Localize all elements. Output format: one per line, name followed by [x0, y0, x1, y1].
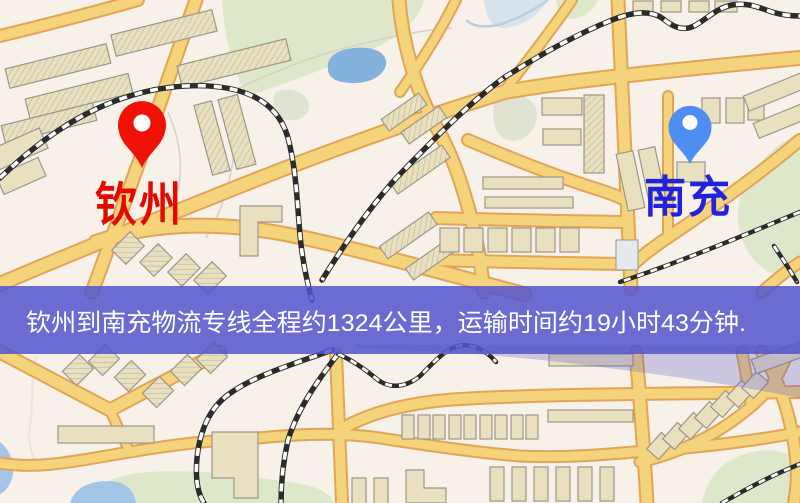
origin-pin-hole: [134, 115, 151, 132]
info-banner-text: 钦州到南充物流专线全程约1324公里，运输时间约19小时43分钟.: [26, 309, 746, 337]
map-canvas[interactable]: 钦州到南充物流专线全程约1324公里，运输时间约19小时43分钟. 钦州 南充: [0, 0, 800, 503]
origin-label: 钦州: [95, 178, 183, 231]
map-screenshot: 钦州到南充物流专线全程约1324公里，运输时间约19小时43分钟. 钦州 南充: [0, 0, 800, 503]
destination-label: 南充: [644, 173, 732, 222]
info-banner: 钦州到南充物流专线全程约1324公里，运输时间约19小时43分钟.: [0, 286, 800, 354]
destination-pin-hole: [683, 115, 698, 130]
